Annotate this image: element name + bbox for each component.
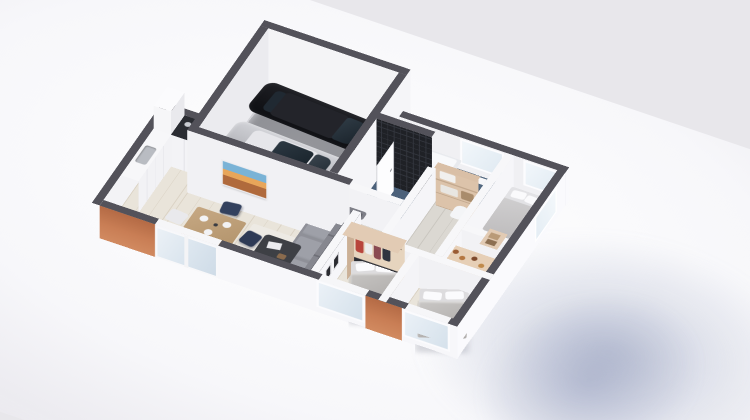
door-handle — [390, 168, 392, 173]
pantry-jar — [470, 256, 478, 262]
dinnerware-plate — [221, 221, 233, 229]
pantry-jar — [458, 255, 466, 261]
linen-stack — [440, 184, 457, 197]
sliding-door-mullion — [184, 235, 188, 268]
pantry-jar — [452, 249, 460, 255]
table-bottle — [213, 223, 219, 227]
magazine — [266, 241, 282, 250]
floor-plan-render — [0, 0, 750, 420]
pantry-jar — [477, 263, 485, 269]
bed3-pillow — [423, 291, 443, 300]
wall-art-painting — [223, 161, 267, 199]
framed-picture — [333, 252, 338, 271]
bed3-pillow — [445, 291, 464, 299]
dinnerware-plate — [198, 214, 210, 222]
